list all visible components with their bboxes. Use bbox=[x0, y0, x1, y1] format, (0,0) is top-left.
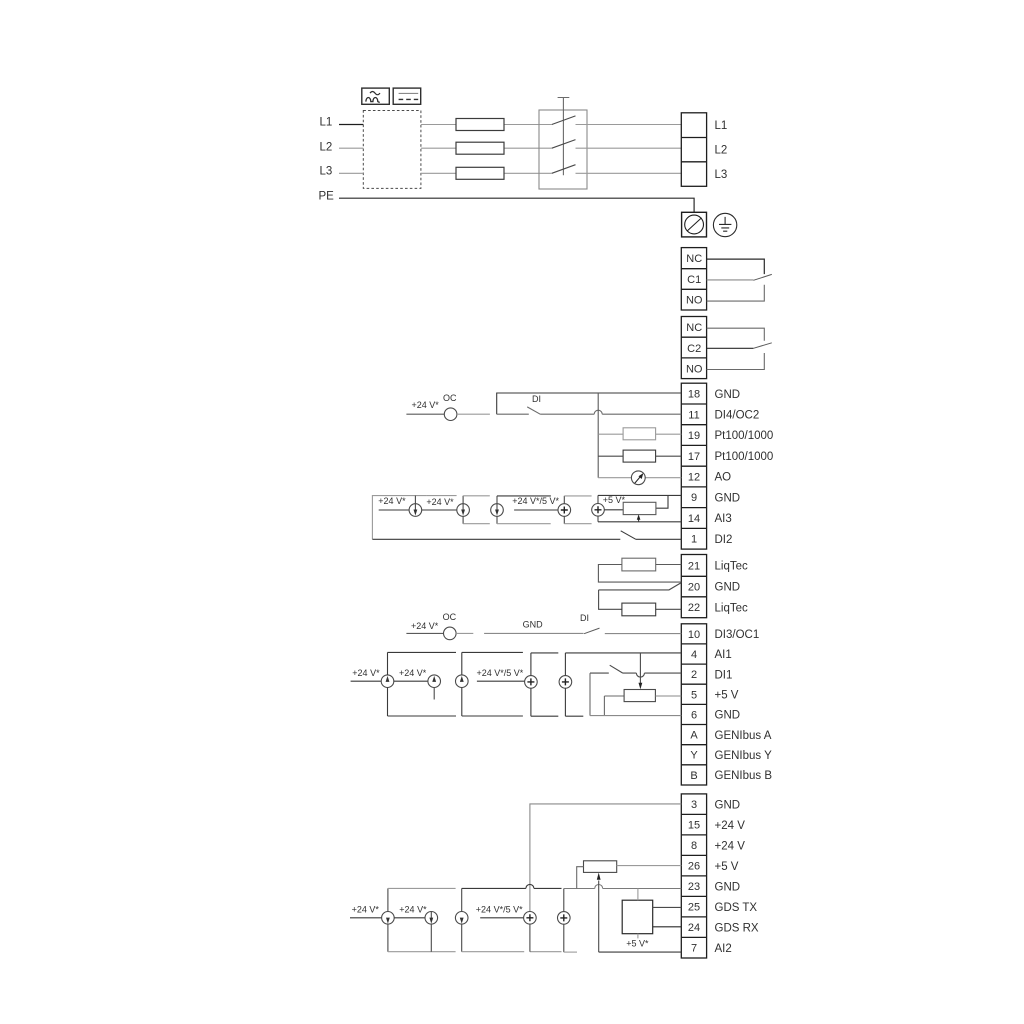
svg-text:DI4/OC2: DI4/OC2 bbox=[715, 410, 760, 422]
svg-text:GND: GND bbox=[715, 799, 741, 811]
svg-text:GND: GND bbox=[715, 389, 741, 401]
svg-text:Pt100/1000: Pt100/1000 bbox=[715, 430, 774, 442]
svg-text:A: A bbox=[690, 730, 698, 742]
svg-text:C2: C2 bbox=[687, 343, 701, 355]
svg-text:+5 V: +5 V bbox=[715, 861, 739, 873]
svg-text:5: 5 bbox=[691, 689, 697, 701]
svg-text:AI3: AI3 bbox=[715, 513, 732, 525]
svg-text:1: 1 bbox=[691, 534, 697, 546]
svg-text:GENIbus A: GENIbus A bbox=[715, 730, 772, 742]
svg-text:AI2: AI2 bbox=[715, 943, 732, 955]
svg-text:+24 V*: +24 V* bbox=[399, 905, 427, 915]
svg-text:11: 11 bbox=[688, 409, 699, 421]
svg-text:GND: GND bbox=[715, 881, 741, 893]
svg-text:NO: NO bbox=[686, 295, 703, 307]
svg-text:GND: GND bbox=[523, 619, 544, 629]
svg-text:23: 23 bbox=[688, 881, 700, 893]
svg-text:+24 V: +24 V bbox=[715, 820, 746, 832]
svg-text:+24 V*/5 V*: +24 V*/5 V* bbox=[476, 905, 523, 915]
svg-text:26: 26 bbox=[688, 861, 700, 873]
svg-text:DI: DI bbox=[532, 394, 541, 404]
svg-text:12: 12 bbox=[688, 472, 700, 484]
svg-text:GND: GND bbox=[715, 492, 741, 504]
svg-text:10: 10 bbox=[688, 629, 700, 641]
svg-text:AI1: AI1 bbox=[715, 649, 732, 661]
svg-text:L2: L2 bbox=[320, 141, 333, 153]
svg-text:+5 V*: +5 V* bbox=[603, 495, 626, 505]
svg-text:NC: NC bbox=[686, 253, 702, 265]
svg-text:3: 3 bbox=[691, 799, 697, 811]
svg-text:+5 V*: +5 V* bbox=[626, 938, 649, 948]
svg-text:17: 17 bbox=[688, 451, 700, 463]
svg-text:+24 V*: +24 V* bbox=[378, 496, 406, 506]
svg-text:L1: L1 bbox=[320, 116, 333, 128]
svg-text:DI3/OC1: DI3/OC1 bbox=[715, 629, 760, 641]
svg-text:19: 19 bbox=[688, 430, 700, 442]
svg-text:OC: OC bbox=[443, 393, 457, 403]
svg-text:+24 V*: +24 V* bbox=[399, 668, 427, 678]
svg-text:B: B bbox=[690, 770, 697, 782]
svg-text:2: 2 bbox=[691, 669, 697, 681]
svg-text:L3: L3 bbox=[320, 166, 333, 178]
svg-text:Y: Y bbox=[690, 750, 698, 762]
svg-text:25: 25 bbox=[688, 902, 700, 914]
svg-text:NO: NO bbox=[686, 364, 703, 376]
svg-text:22: 22 bbox=[688, 602, 700, 614]
svg-text:L1: L1 bbox=[715, 120, 728, 132]
svg-text:C1: C1 bbox=[687, 274, 701, 286]
svg-text:9: 9 bbox=[691, 492, 697, 504]
svg-text:PE: PE bbox=[319, 191, 335, 203]
svg-text:L2: L2 bbox=[715, 145, 728, 157]
svg-text:14: 14 bbox=[688, 513, 700, 525]
svg-text:GND: GND bbox=[715, 710, 741, 722]
svg-text:GDS TX: GDS TX bbox=[715, 902, 758, 914]
svg-text:+24 V*: +24 V* bbox=[411, 621, 439, 631]
svg-text:24: 24 bbox=[688, 922, 700, 934]
svg-text:GND: GND bbox=[715, 582, 741, 594]
svg-text:GENIbus B: GENIbus B bbox=[715, 770, 773, 782]
svg-text:+24 V*: +24 V* bbox=[426, 497, 454, 507]
svg-text:GENIbus Y: GENIbus Y bbox=[715, 750, 773, 762]
svg-text:6: 6 bbox=[691, 709, 697, 721]
svg-text:Pt100/1000: Pt100/1000 bbox=[715, 451, 774, 463]
svg-text:+24 V*: +24 V* bbox=[352, 905, 380, 915]
svg-text:NC: NC bbox=[686, 322, 702, 334]
svg-text:+24 V: +24 V bbox=[715, 840, 746, 852]
svg-text:+24 V*/5 V*: +24 V*/5 V* bbox=[477, 668, 524, 678]
svg-text:+5 V: +5 V bbox=[715, 690, 739, 702]
svg-text:+24 V*: +24 V* bbox=[352, 668, 380, 678]
svg-text:L3: L3 bbox=[715, 169, 728, 181]
svg-text:7: 7 bbox=[691, 943, 697, 955]
svg-text:AO: AO bbox=[715, 472, 732, 484]
svg-text:4: 4 bbox=[691, 649, 697, 661]
svg-text:+24 V*/5 V*: +24 V*/5 V* bbox=[512, 496, 559, 506]
svg-text:DI: DI bbox=[580, 613, 589, 623]
svg-text:15: 15 bbox=[688, 820, 700, 832]
svg-text:18: 18 bbox=[688, 389, 700, 401]
svg-text:OC: OC bbox=[443, 612, 457, 622]
svg-text:21: 21 bbox=[688, 560, 700, 572]
svg-text:DI2: DI2 bbox=[715, 534, 733, 546]
svg-text:LiqTec: LiqTec bbox=[715, 602, 748, 614]
svg-text:DI1: DI1 bbox=[715, 669, 733, 681]
svg-text:+24 V*: +24 V* bbox=[412, 400, 440, 410]
svg-text:8: 8 bbox=[691, 840, 697, 852]
svg-text:LiqTec: LiqTec bbox=[715, 561, 748, 573]
svg-text:20: 20 bbox=[688, 581, 700, 593]
svg-text:GDS RX: GDS RX bbox=[715, 922, 759, 934]
